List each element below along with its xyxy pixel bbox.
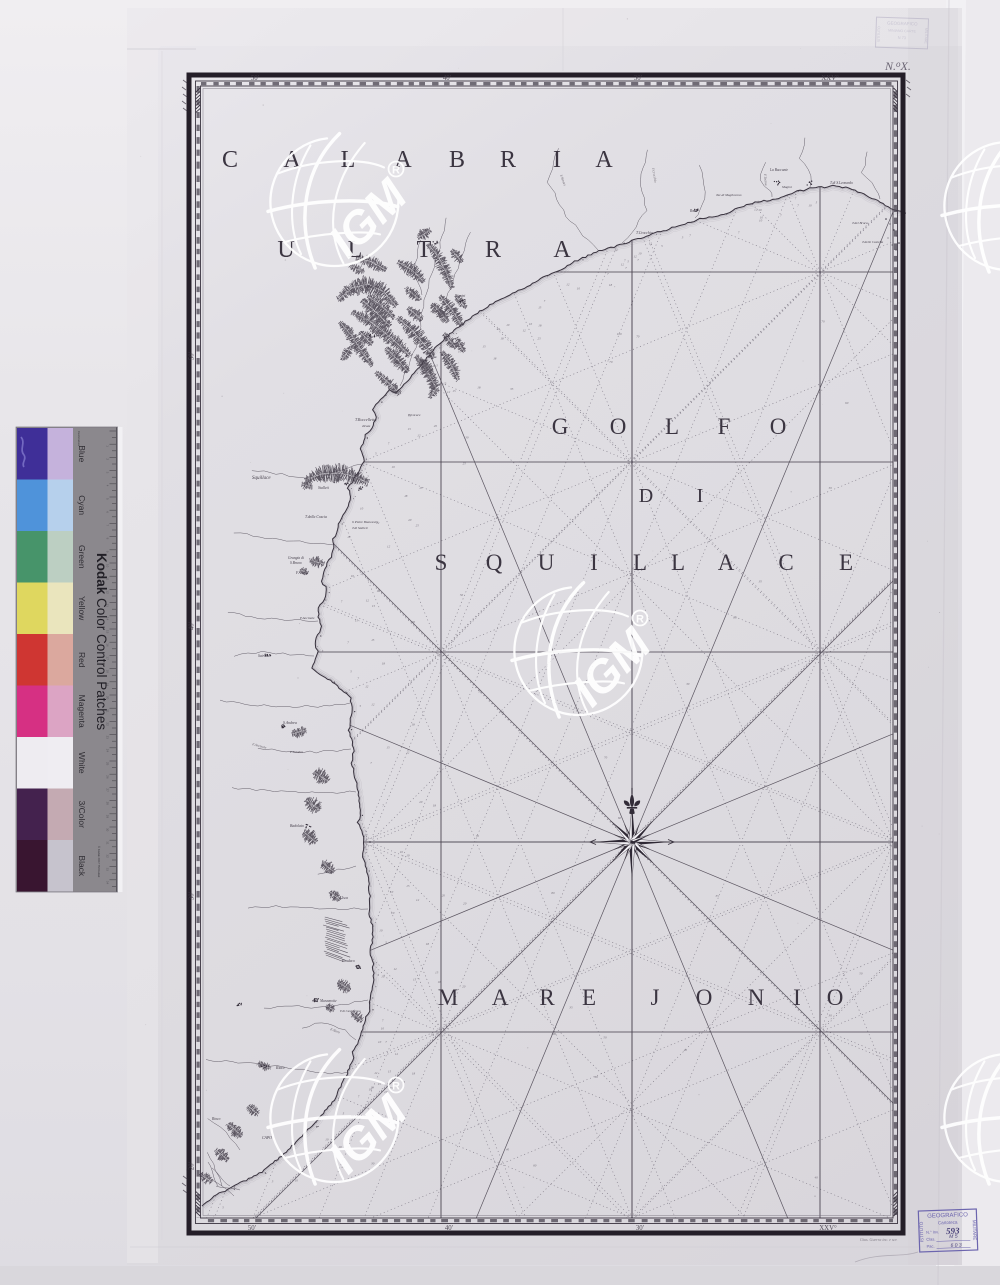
svg-text:10: 10 xyxy=(638,252,642,256)
svg-text:10: 10 xyxy=(808,203,812,207)
svg-text:L: L xyxy=(341,147,356,173)
svg-text:100: 100 xyxy=(617,332,622,336)
svg-text:D: D xyxy=(639,485,653,507)
svg-text:10: 10 xyxy=(577,287,581,291)
svg-text:12: 12 xyxy=(366,598,370,602)
svg-text:La Baccante: La Baccante xyxy=(769,168,788,172)
svg-text:I: I xyxy=(553,147,561,173)
svg-text:25: 25 xyxy=(416,524,420,528)
svg-text:15: 15 xyxy=(538,306,542,310)
svg-text:T: T xyxy=(417,237,432,263)
svg-text:50: 50 xyxy=(460,593,464,597)
svg-text:40′: 40′ xyxy=(443,75,452,82)
svg-text:A: A xyxy=(595,147,613,173)
svg-text:XXV°: XXV° xyxy=(821,75,839,82)
svg-text:60: 60 xyxy=(845,401,849,405)
svg-text:ISTITUTO: ISTITUTO xyxy=(877,26,882,42)
svg-text:30′: 30′ xyxy=(636,1225,645,1232)
svg-text:© Kodak 2007 TM Kodak: © Kodak 2007 TM Kodak xyxy=(97,846,101,878)
svg-text:18: 18 xyxy=(538,323,542,327)
svg-text:10: 10 xyxy=(759,218,763,222)
svg-text:C: C xyxy=(778,550,793,575)
svg-text:20: 20 xyxy=(442,894,446,898)
svg-text:28: 28 xyxy=(106,802,110,806)
svg-text:12: 12 xyxy=(387,545,391,549)
svg-text:50′: 50′ xyxy=(248,1225,257,1232)
svg-text:Cyan: Cyan xyxy=(77,495,87,515)
svg-text:60: 60 xyxy=(618,816,622,820)
svg-text:18: 18 xyxy=(433,804,437,808)
svg-text:18: 18 xyxy=(609,283,613,287)
svg-text:80: 80 xyxy=(733,615,737,619)
svg-text:70: 70 xyxy=(604,756,608,760)
svg-text:10: 10 xyxy=(392,465,396,469)
svg-text:O: O xyxy=(770,414,787,439)
svg-text:15: 15 xyxy=(413,978,417,982)
svg-text:18: 18 xyxy=(404,494,408,498)
svg-text:J: J xyxy=(651,985,660,1010)
svg-text:10: 10 xyxy=(351,574,355,578)
svg-text:31: 31 xyxy=(106,841,110,845)
svg-text:F.Corace: F.Corace xyxy=(407,413,421,417)
svg-text:80: 80 xyxy=(551,891,555,895)
svg-text:L: L xyxy=(633,550,647,575)
svg-text:16: 16 xyxy=(106,643,110,647)
svg-text:10: 10 xyxy=(497,327,501,331)
svg-text:L: L xyxy=(671,550,685,575)
svg-text:15: 15 xyxy=(452,389,456,393)
svg-text:20: 20 xyxy=(463,901,467,905)
svg-text:26: 26 xyxy=(106,775,110,779)
svg-text:Riace: Riace xyxy=(275,1065,285,1070)
svg-text:14: 14 xyxy=(106,617,110,621)
svg-text:20: 20 xyxy=(419,800,423,804)
svg-text:15: 15 xyxy=(443,381,447,385)
svg-text:R: R xyxy=(500,147,516,173)
svg-text:Catanzaro: Catanzaro xyxy=(364,285,380,289)
svg-text:10: 10 xyxy=(381,974,385,978)
svg-text:T.di Stalleti: T.di Stalleti xyxy=(352,526,368,530)
svg-text:50: 50 xyxy=(829,486,833,490)
svg-text:O: O xyxy=(827,985,844,1010)
svg-text:15: 15 xyxy=(435,971,439,975)
svg-text:33: 33 xyxy=(106,868,110,872)
svg-text:60: 60 xyxy=(533,1163,537,1167)
svg-text:18: 18 xyxy=(438,980,442,984)
svg-text:10: 10 xyxy=(506,323,510,327)
svg-text:R: R xyxy=(539,985,555,1010)
svg-text:Black: Black xyxy=(77,855,87,877)
svg-text:Tac.di Magliocono: Tac.di Magliocono xyxy=(716,193,742,197)
svg-text:MILITARE: MILITARE xyxy=(972,1220,978,1241)
svg-text:10: 10 xyxy=(347,535,351,539)
svg-text:C: C xyxy=(222,147,238,173)
svg-text:20: 20 xyxy=(408,518,412,522)
svg-text:F.Salubro: F.Salubro xyxy=(289,750,303,754)
svg-text:50: 50 xyxy=(478,690,482,694)
svg-text:CAPO: CAPO xyxy=(262,1136,272,1140)
svg-text:T.della Coscia: T.della Coscia xyxy=(305,515,327,519)
svg-text:li Pietre Biancastre: li Pietre Biancastre xyxy=(352,520,379,524)
svg-text:40: 40 xyxy=(684,1048,688,1052)
svg-text:12: 12 xyxy=(371,703,375,707)
svg-text:35: 35 xyxy=(759,579,763,583)
svg-text:10: 10 xyxy=(390,890,394,894)
svg-text:15: 15 xyxy=(408,427,412,431)
svg-text:70: 70 xyxy=(476,834,480,838)
svg-text:F.di Castelfrona: F.di Castelfrona xyxy=(339,1009,361,1013)
svg-text:35: 35 xyxy=(716,894,720,898)
svg-text:21: 21 xyxy=(106,709,110,713)
svg-text:35: 35 xyxy=(569,1006,573,1010)
svg-text:15: 15 xyxy=(482,345,486,349)
svg-text:20: 20 xyxy=(462,985,466,989)
svg-text:G: G xyxy=(552,414,569,439)
svg-text:A: A xyxy=(553,237,571,263)
svg-text:N: N xyxy=(748,985,765,1010)
svg-text:O: O xyxy=(696,985,713,1010)
svg-text:dirata: dirata xyxy=(362,424,371,428)
svg-text:Magenta: Magenta xyxy=(77,695,87,728)
svg-text:10: 10 xyxy=(391,911,395,915)
svg-text:Pizzini: Pizzini xyxy=(454,294,465,298)
svg-text:S.Andrea: S.Andrea xyxy=(283,721,297,725)
svg-text:40: 40 xyxy=(506,1148,510,1152)
svg-text:10: 10 xyxy=(295,1179,299,1183)
svg-text:12: 12 xyxy=(374,1071,378,1075)
svg-text:20: 20 xyxy=(106,696,110,700)
svg-text:10: 10 xyxy=(369,1087,373,1091)
svg-text:12: 12 xyxy=(417,433,421,437)
svg-text:40: 40 xyxy=(501,711,505,715)
svg-text:Red: Red xyxy=(77,652,87,668)
svg-text:12: 12 xyxy=(394,967,398,971)
svg-text:Gius. Guerra inc. e scr.: Gius. Guerra inc. e scr. xyxy=(860,1237,897,1242)
svg-text:T.Roccelletta: T.Roccelletta xyxy=(355,417,376,422)
svg-text:30: 30 xyxy=(106,828,110,832)
svg-text:E: E xyxy=(839,550,853,575)
svg-text:Squillace: Squillace xyxy=(252,476,271,481)
svg-text:R: R xyxy=(485,237,501,263)
svg-text:Cartoteca: Cartoteca xyxy=(938,1220,958,1226)
svg-text:29: 29 xyxy=(106,815,110,819)
svg-text:15: 15 xyxy=(355,618,359,622)
svg-text:50: 50 xyxy=(781,668,785,672)
svg-text:35: 35 xyxy=(510,387,514,391)
svg-text:Grangia di: Grangia di xyxy=(288,556,304,560)
svg-text:34: 34 xyxy=(106,881,110,885)
svg-text:M 5: M 5 xyxy=(949,1234,958,1240)
svg-text:Roua: Roua xyxy=(689,209,698,213)
svg-text:12: 12 xyxy=(406,751,410,755)
svg-text:T.delle Castella: T.delle Castella xyxy=(862,240,884,244)
svg-text:24: 24 xyxy=(106,749,110,753)
svg-text:12: 12 xyxy=(447,390,451,394)
svg-text:10: 10 xyxy=(378,1040,382,1044)
svg-text:15: 15 xyxy=(388,1069,392,1073)
svg-text:Stalleti: Stalleti xyxy=(318,486,329,490)
svg-text:25: 25 xyxy=(538,337,542,341)
svg-text:T.del Bruca: T.del Bruca xyxy=(852,221,868,225)
svg-text:12: 12 xyxy=(106,590,110,594)
svg-text:T.Crocchia: T.Crocchia xyxy=(636,231,653,235)
svg-text:N.° Inv.: N.° Inv. xyxy=(926,1229,939,1234)
svg-text:Rinco: Rinco xyxy=(211,1117,221,1121)
svg-text:25: 25 xyxy=(463,462,467,466)
svg-text:60: 60 xyxy=(595,1075,599,1079)
svg-text:10: 10 xyxy=(758,208,762,212)
svg-text:18: 18 xyxy=(412,722,416,726)
svg-text:30: 30 xyxy=(829,1014,833,1018)
svg-text:12: 12 xyxy=(621,262,625,266)
svg-text:11: 11 xyxy=(106,577,110,580)
svg-text:18: 18 xyxy=(493,357,497,361)
svg-text:40: 40 xyxy=(815,1176,819,1180)
svg-text:A: A xyxy=(492,985,509,1010)
svg-text:T.di S.Leonardo: T.di S.Leonardo xyxy=(830,181,853,185)
svg-text:I: I xyxy=(697,485,704,507)
svg-text:Pac.: Pac. xyxy=(926,1243,934,1248)
svg-text:17: 17 xyxy=(106,656,110,660)
svg-text:Satriano: Satriano xyxy=(258,654,271,658)
svg-text:F: F xyxy=(718,414,731,439)
svg-text:M: M xyxy=(438,985,458,1010)
svg-text:O: O xyxy=(610,414,627,439)
svg-text:Badolato: Badolato xyxy=(290,824,304,828)
svg-text:23: 23 xyxy=(106,736,110,740)
svg-text:18: 18 xyxy=(426,942,430,946)
svg-text:15: 15 xyxy=(386,745,390,749)
svg-text:S.Bruno: S.Bruno xyxy=(290,561,302,565)
svg-text:100: 100 xyxy=(551,1032,556,1036)
svg-text:N 73: N 73 xyxy=(898,35,907,40)
svg-text:19: 19 xyxy=(106,683,110,687)
svg-text:18: 18 xyxy=(377,589,381,593)
svg-text:Magini: Magini xyxy=(781,185,792,189)
svg-text:12: 12 xyxy=(416,898,420,902)
svg-text:32: 32 xyxy=(106,854,110,858)
svg-text:Fondaco: Fondaco xyxy=(341,959,355,963)
svg-text:12: 12 xyxy=(566,282,570,286)
svg-text:Blue: Blue xyxy=(77,445,87,462)
svg-text:18: 18 xyxy=(382,661,386,665)
svg-text:50′: 50′ xyxy=(251,75,260,82)
svg-text:Centimetres: Centimetres xyxy=(77,431,81,447)
svg-text:I: I xyxy=(793,985,801,1010)
svg-text:30: 30 xyxy=(465,435,469,439)
svg-text:30: 30 xyxy=(412,620,416,624)
svg-text:12: 12 xyxy=(523,329,527,333)
svg-text:Marzanotte: Marzanotte xyxy=(319,999,337,1003)
svg-text:10: 10 xyxy=(529,322,533,326)
svg-text:10: 10 xyxy=(360,507,364,511)
svg-text:3/Color: 3/Color xyxy=(77,800,87,828)
svg-text:15: 15 xyxy=(419,486,423,490)
svg-text:15: 15 xyxy=(372,604,376,608)
svg-text:12: 12 xyxy=(395,1052,399,1056)
svg-text:50′: 50′ xyxy=(189,351,196,360)
svg-text:70: 70 xyxy=(821,319,825,323)
svg-text:18: 18 xyxy=(431,1032,435,1036)
svg-text:22: 22 xyxy=(106,722,110,726)
svg-text:White: White xyxy=(77,752,87,774)
svg-text:15: 15 xyxy=(106,630,110,634)
svg-text:20′: 20′ xyxy=(189,1161,196,1170)
svg-text:Isca: Isca xyxy=(341,896,348,900)
svg-text:13: 13 xyxy=(106,604,110,608)
svg-text:U: U xyxy=(538,550,555,575)
svg-text:E: E xyxy=(582,985,596,1010)
svg-text:40′: 40′ xyxy=(445,1225,454,1232)
svg-text:10: 10 xyxy=(381,1027,385,1031)
svg-text:27: 27 xyxy=(106,788,110,792)
svg-text:10: 10 xyxy=(400,850,404,854)
svg-text:ISTITUTO: ISTITUTO xyxy=(919,1221,925,1242)
svg-text:MILITARE: MILITARE xyxy=(924,28,929,45)
svg-text:10: 10 xyxy=(106,564,110,568)
svg-text:70: 70 xyxy=(609,360,613,364)
svg-text:Clas.: Clas. xyxy=(926,1236,935,1241)
svg-text:30′: 30′ xyxy=(634,75,643,82)
svg-text:L: L xyxy=(665,414,679,439)
svg-text:18: 18 xyxy=(412,1072,416,1076)
svg-text:12: 12 xyxy=(634,255,638,259)
svg-text:18: 18 xyxy=(106,670,110,674)
svg-text:70: 70 xyxy=(636,335,640,339)
svg-text:Yellow: Yellow xyxy=(77,596,87,621)
svg-text:I: I xyxy=(590,550,598,575)
svg-text:10: 10 xyxy=(433,364,437,368)
svg-text:Q: Q xyxy=(486,550,503,575)
svg-text:20: 20 xyxy=(434,424,438,428)
svg-text:XXV°: XXV° xyxy=(819,1225,837,1232)
svg-text:10: 10 xyxy=(379,929,383,933)
svg-text:Green: Green xyxy=(77,545,87,569)
svg-text:15: 15 xyxy=(406,884,410,888)
svg-text:50: 50 xyxy=(859,972,863,976)
svg-text:S: S xyxy=(435,550,448,575)
svg-text:15: 15 xyxy=(371,638,375,642)
svg-text:10: 10 xyxy=(406,854,410,858)
svg-text:18: 18 xyxy=(477,385,481,389)
svg-text:B: B xyxy=(449,147,465,173)
svg-text:12: 12 xyxy=(754,208,758,212)
svg-text:12: 12 xyxy=(365,685,369,689)
svg-text:18: 18 xyxy=(500,336,504,340)
svg-text:F.Ancinale: F.Ancinale xyxy=(299,616,315,620)
svg-text:30′: 30′ xyxy=(189,891,196,900)
svg-text:25: 25 xyxy=(106,762,110,766)
svg-text:A: A xyxy=(718,550,735,575)
svg-text:F.Arigia: F.Arigia xyxy=(295,571,308,575)
svg-text:40′: 40′ xyxy=(189,621,196,630)
svg-text:50: 50 xyxy=(603,1036,607,1040)
svg-text:30: 30 xyxy=(686,682,690,686)
